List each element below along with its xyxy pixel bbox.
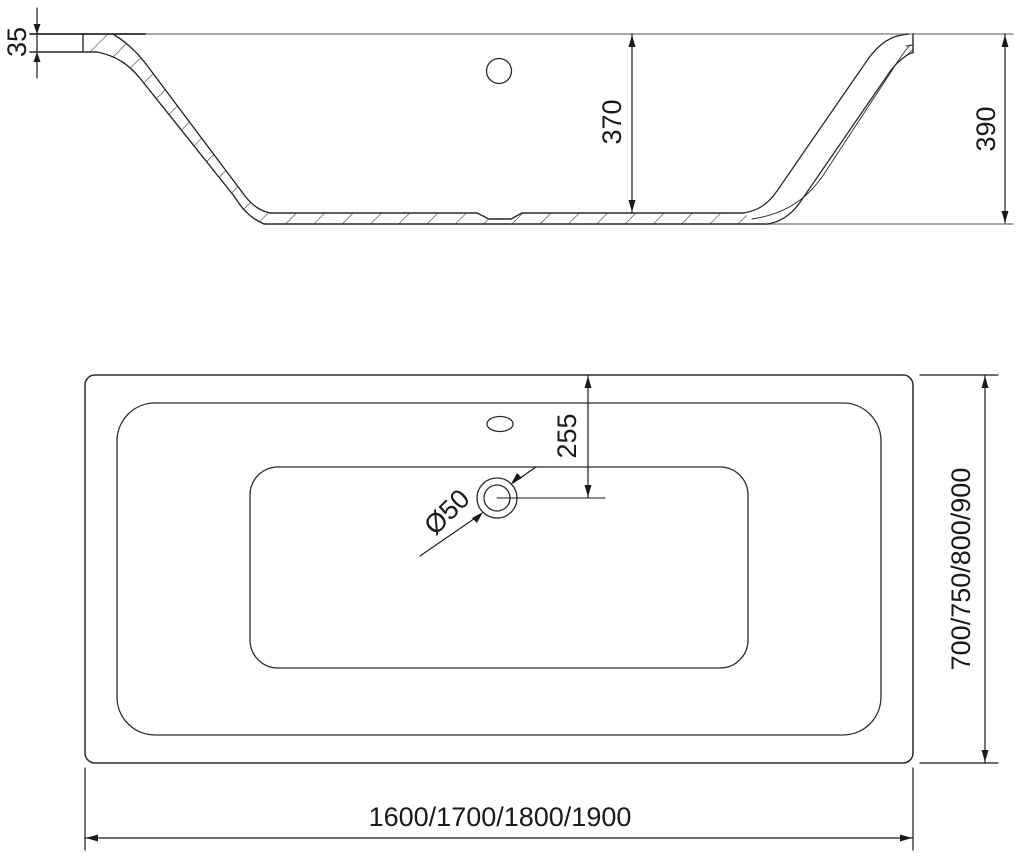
wall-section-hatch	[83, 34, 760, 224]
tub-rim-inner-edge	[117, 403, 881, 735]
arrow-up-icon	[34, 52, 41, 62]
length-options-label: 1600/1700/1800/1900	[369, 802, 632, 832]
bathtub-drawing-svg: 35 370 390 255	[0, 0, 1024, 858]
arrow-up-icon	[629, 35, 636, 47]
side-view: 35 370 390	[2, 8, 1013, 224]
tub-floor-edge	[250, 467, 748, 668]
arrow-downleft-icon	[511, 473, 522, 484]
arrow-right-icon	[900, 835, 912, 842]
arrow-down-icon	[585, 485, 592, 497]
total-height-label: 390	[971, 106, 1001, 151]
arrow-left-icon	[86, 835, 98, 842]
width-options-label: 700/750/800/900	[946, 468, 976, 671]
arrow-down-icon	[629, 200, 636, 212]
dim-inner-depth	[629, 34, 636, 212]
overflow-hole-section	[487, 59, 512, 84]
right-wall-inner-edge	[743, 34, 908, 213]
right-corner-hatch	[894, 34, 913, 66]
arrow-up-icon	[982, 376, 989, 388]
arrow-upright-icon	[472, 512, 483, 523]
arrow-up-icon	[1002, 35, 1009, 47]
rim-thickness-label: 35	[2, 27, 32, 57]
arrow-down-icon	[1002, 211, 1009, 223]
drain-offset-label: 255	[552, 413, 582, 458]
arrow-up-icon	[585, 376, 592, 388]
arrow-down-icon	[982, 750, 989, 762]
inner-depth-label: 370	[597, 99, 627, 144]
dim-drain-offset	[585, 375, 592, 498]
overflow-hole-plan	[487, 417, 513, 432]
tub-outer-edge	[85, 375, 913, 763]
plan-view: 255 Ø50 700/750/800/900 1600/1700/1800/1…	[85, 375, 998, 850]
technical-drawing: 35 370 390 255	[0, 0, 1024, 858]
dim-total-height	[1002, 34, 1009, 223]
drain-diameter-label: Ø50	[418, 483, 475, 540]
arrow-down-icon	[34, 24, 41, 34]
right-wall-outer-edge	[768, 52, 913, 224]
dim-rim-thickness	[34, 8, 41, 78]
